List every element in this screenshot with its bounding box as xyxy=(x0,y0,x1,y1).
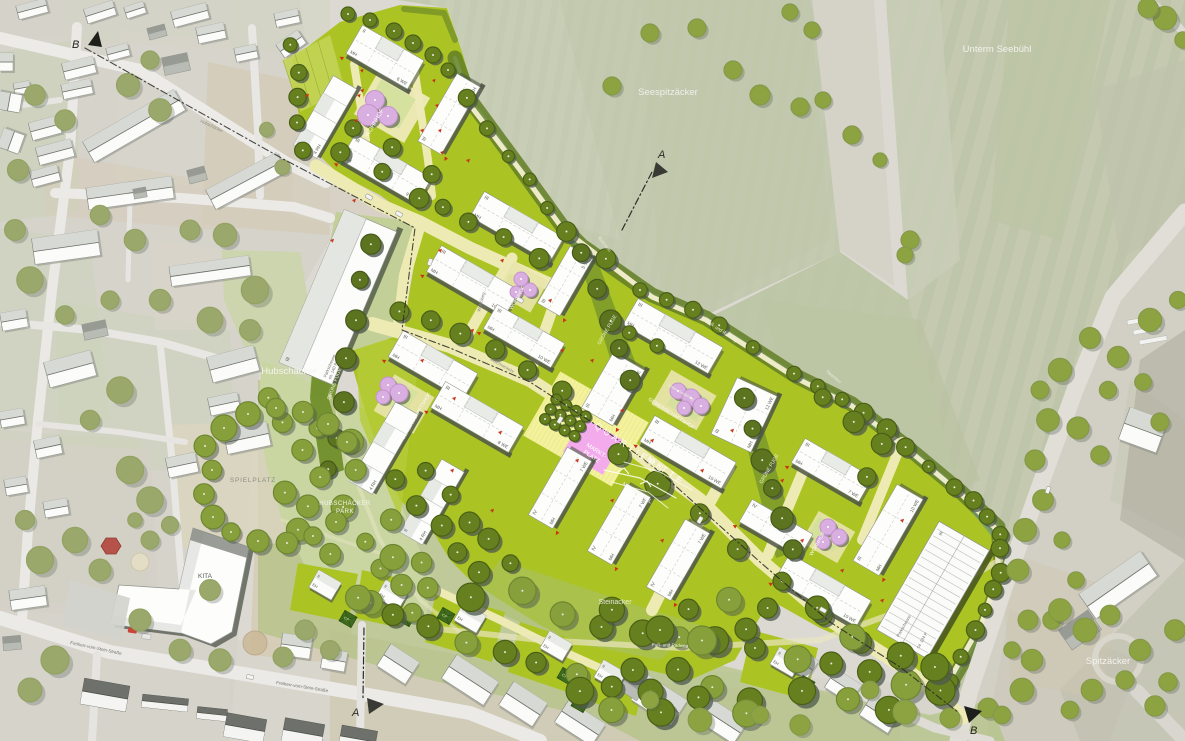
svg-text:HUBSCHÄCKER: HUBSCHÄCKER xyxy=(319,500,371,507)
svg-text:KITA: KITA xyxy=(198,573,213,580)
svg-text:PARK: PARK xyxy=(336,509,354,515)
svg-text:B: B xyxy=(970,725,977,737)
svg-text:A: A xyxy=(657,149,665,161)
svg-text:Steinacker: Steinacker xyxy=(598,599,632,606)
svg-text:A: A xyxy=(351,707,359,719)
svg-text:B: B xyxy=(72,39,79,51)
svg-text:SPIELPLATZ: SPIELPLATZ xyxy=(230,477,276,484)
svg-text:Spitzäcker: Spitzäcker xyxy=(1086,656,1130,667)
svg-text:Hubschäcker: Hubschäcker xyxy=(261,366,316,377)
svg-text:Seespitzäcker: Seespitzäcker xyxy=(638,87,698,98)
svg-text:Unterm Seebühl: Unterm Seebühl xyxy=(963,44,1032,55)
